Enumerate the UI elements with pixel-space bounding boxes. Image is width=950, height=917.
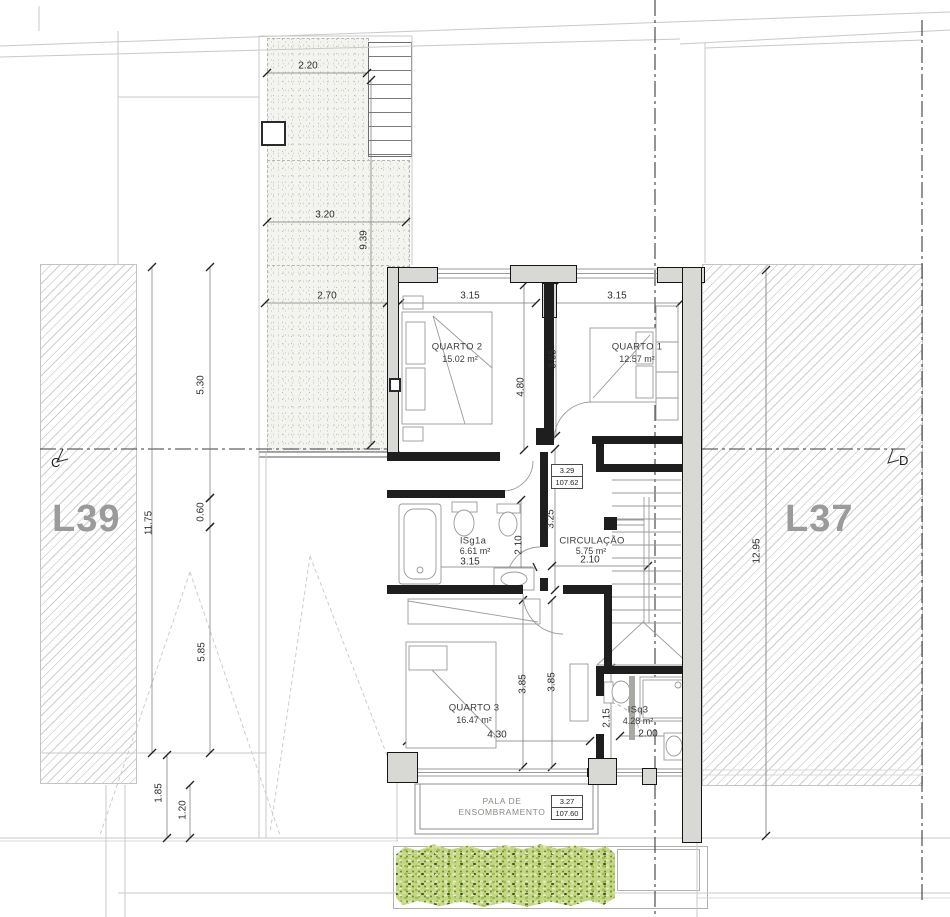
exterior-wall xyxy=(387,267,399,457)
exterior-wall xyxy=(642,768,657,785)
room-label-isg1a: ISg1a xyxy=(460,536,486,547)
dimension-label-d185: 1.85 xyxy=(154,783,165,802)
room-label-quarto1: QUARTO 1 xyxy=(612,342,663,353)
patio-post-marker xyxy=(261,121,286,146)
dimension-label-d315a: 3.15 xyxy=(460,291,479,302)
floor-plan-canvas: L39 L37 line,path,rect,ellipse,circle{fi… xyxy=(0,0,950,917)
dimension-label-d215: 2.15 xyxy=(602,708,613,727)
dimension-label-d939: 9.39 xyxy=(359,230,370,249)
interior-wall xyxy=(387,452,500,461)
dimension-label-d1175: 11.75 xyxy=(144,511,155,535)
interior-wall xyxy=(604,666,682,674)
dimension-label-d210a: 2.10 xyxy=(514,535,525,554)
interior-wall xyxy=(596,666,604,696)
interior-wall xyxy=(387,490,505,498)
interior-wall xyxy=(596,444,604,472)
dimension-label-d365: 3.65 xyxy=(548,349,559,368)
dimension-label-d200: 2.00 xyxy=(638,729,657,740)
level-marker-upper: 3.29 107.62 xyxy=(551,464,583,489)
level-lower-absolute: 107.60 xyxy=(552,807,582,819)
dimension-label-d385b: 3.85 xyxy=(547,672,558,691)
dimension-label-d270: 2.70 xyxy=(317,291,336,302)
interior-wall xyxy=(536,428,544,445)
level-lower-relative: 3.27 xyxy=(552,796,582,807)
pala-label-line1: PALA DE xyxy=(482,796,521,806)
room-label-isq3: ISq3 xyxy=(628,705,649,716)
level-upper-relative: 3.29 xyxy=(552,465,582,476)
dimension-label-d315b: 3.15 xyxy=(607,291,626,302)
section-marker-c: C xyxy=(51,455,60,470)
exterior-wall xyxy=(682,267,702,843)
interior-wall xyxy=(387,585,523,594)
interior-wall xyxy=(604,464,683,472)
exterior-wall xyxy=(588,758,617,785)
dimension-label-d385a: 3.85 xyxy=(518,674,529,693)
level-upper-absolute: 107.62 xyxy=(552,476,582,488)
dimension-label-d1295: 12.95 xyxy=(752,538,763,563)
interior-wall xyxy=(604,585,612,674)
room-label-quarto2: QUARTO 2 xyxy=(432,342,483,353)
dimension-label-d320: 3.20 xyxy=(315,210,334,221)
dimension-label-d315c: 3.15 xyxy=(460,557,479,568)
pala-label-line2: ENSOMBRAMENTO xyxy=(459,807,546,817)
wall-post-marker xyxy=(389,378,401,392)
interior-wall xyxy=(592,436,683,444)
exterior-wall xyxy=(510,265,577,283)
room-area-quarto3: 16.47 m² xyxy=(456,715,492,725)
dimension-label-d480: 4.80 xyxy=(516,377,527,396)
dimension-label-d120: 1.20 xyxy=(178,800,189,819)
interior-wall xyxy=(540,452,548,547)
room-area-quarto2: 15.02 m² xyxy=(442,354,478,364)
room-area-isg1a: 6.61 m² xyxy=(460,546,491,556)
dimension-label-d530: 5.30 xyxy=(196,375,207,394)
hedge-vegetation xyxy=(396,843,615,908)
interior-wall xyxy=(540,578,548,591)
dimension-label-d210b: 2.10 xyxy=(580,555,599,566)
dimension-label-d585: 5.85 xyxy=(197,642,208,661)
dimension-label-d220: 2.20 xyxy=(298,61,317,72)
dimension-label-d430: 4.30 xyxy=(487,730,506,741)
room-area-quarto1: 12.57 m² xyxy=(619,354,655,364)
room-area-isq3: 4.28 m² xyxy=(623,716,654,726)
interior-wall xyxy=(604,517,617,530)
exterior-wall xyxy=(387,752,418,783)
dimension-label-d325: 3.25 xyxy=(546,509,557,528)
room-label-quarto3: QUARTO 3 xyxy=(449,703,500,714)
room-area-circulacao: 5.75 m² xyxy=(576,546,607,556)
dimension-label-d060: 0.60 xyxy=(196,502,207,521)
room-label-circulacao: CIRCULAÇÃO xyxy=(559,536,624,547)
section-marker-d: D xyxy=(899,453,908,468)
level-marker-lower: 3.27 107.60 xyxy=(551,795,583,820)
